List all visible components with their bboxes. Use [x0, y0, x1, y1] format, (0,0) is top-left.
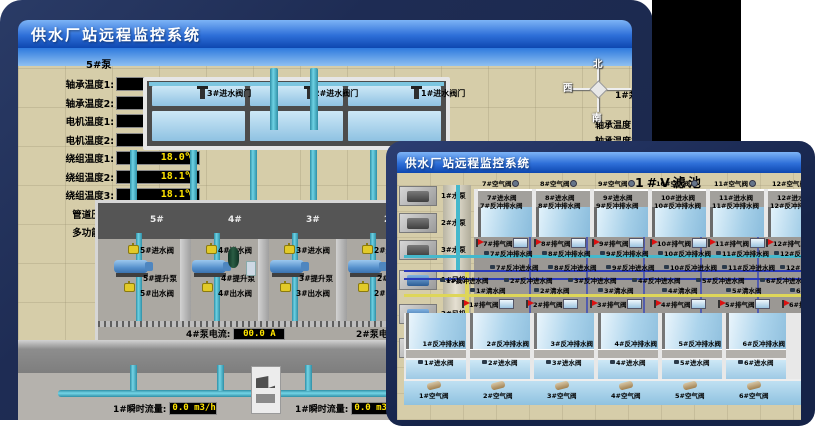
cell-header-band: 12#进水阀 12#反冲排水阀 [768, 189, 801, 207]
air-valve-label: 11#空气阀 [714, 178, 748, 188]
air-valve-label: 10#空气阀 [656, 178, 690, 188]
flag-icon [654, 300, 656, 308]
exhaust-valve[interactable]: 11#排气阀 [708, 238, 765, 248]
valve-icon [542, 251, 547, 255]
pump-label: 2#水泵 [441, 218, 466, 228]
exhaust-valve[interactable]: 9#排气阀 [592, 238, 644, 248]
pump-label: 1#水泵 [441, 191, 466, 201]
valve-icon [600, 251, 605, 255]
air-valve[interactable]: 8#空气阀 [540, 178, 577, 188]
air-valve-label: 6#空气阀 [739, 390, 768, 400]
pipe-gallery: 7#排气阀 8#排气阀 9#排气阀 10#排气阀 11#排气阀 [474, 237, 801, 313]
exhaust-valve[interactable]: 3#排气阀 [590, 299, 642, 309]
intake-pool [143, 77, 450, 150]
exhaust-valve[interactable]: 6#排气阀 [782, 299, 801, 309]
backwash-drain-valve[interactable]: 9#反冲排水阀 [600, 248, 648, 258]
backwash-inlet-label: 1#反冲进水阀 [446, 275, 488, 285]
backwash-drain-label: 6#反冲排水阀 [743, 338, 785, 348]
backwash-drain-label: 12#反冲排水阀 [770, 200, 801, 210]
valve-icon [696, 278, 701, 282]
tank-icon [750, 238, 765, 248]
valve-icon [628, 180, 635, 187]
inlet-gate-valve[interactable]: 3#进水阀门 [200, 88, 251, 99]
flag-icon [590, 300, 592, 308]
exhaust-valve-label: 12#排气阀 [773, 238, 801, 248]
valve-icon [490, 265, 495, 269]
valve-icon [534, 288, 539, 292]
backwash-inlet-label: 2#反冲进水阀 [510, 275, 552, 285]
backwash-drain-label: 3#反冲排水阀 [551, 338, 593, 348]
valve-icon [664, 265, 669, 269]
backwash-drain-valve[interactable]: 12#反冲排水阀 [774, 248, 801, 258]
exhaust-valve-label: 2#排气阀 [533, 299, 562, 309]
pipe-stub [217, 365, 224, 391]
panel-row-label: 电机温度2: [48, 133, 114, 147]
exhaust-valve[interactable]: 1#排气阀 [462, 299, 514, 309]
inlet-valve[interactable]: 5#进水阀 [674, 357, 709, 367]
clean-water-valve[interactable]: 5#清水阀 [726, 285, 761, 295]
backwash-inlet-label: 6#反冲进水阀 [766, 275, 801, 285]
pipe-stub [130, 150, 137, 200]
valve-icon [606, 265, 611, 269]
valve-icon[interactable] [124, 283, 135, 292]
inlet-valve[interactable]: 4#进水阀 [610, 357, 645, 367]
air-valve-label: 7#空气阀 [482, 178, 511, 188]
backwash-inlet-valve[interactable]: 2#反冲进水阀 [504, 275, 552, 285]
air-valve-label: 3#空气阀 [547, 390, 576, 400]
air-valve[interactable]: 4#空气阀 [611, 382, 640, 400]
outlet-valve-label: 4#出水阀 [218, 288, 252, 299]
gate-valve-icon [414, 88, 419, 99]
backwash-drain-label: 11#反冲排水阀 [712, 200, 759, 210]
valve-icon[interactable] [206, 245, 217, 254]
cell-water [710, 207, 764, 237]
blower-icon [399, 270, 437, 290]
gate-valve-icon [200, 88, 205, 99]
pipe-stub [190, 150, 197, 200]
clean-water-valve[interactable]: 4#清水阀 [662, 285, 697, 295]
filter-cell-bottom[interactable]: 6#反冲排水阀 6#进水阀 [726, 313, 786, 379]
air-valve[interactable]: 11#空气阀 [714, 178, 756, 188]
air-valve-label: 1#空气阀 [419, 390, 448, 400]
valve-icon [632, 278, 637, 282]
panel-row-label: 电机温度1: [48, 114, 114, 128]
inlet-valve-label: 2#进水阀 [488, 357, 517, 367]
control-panel-icon [246, 261, 256, 276]
tank-icon [513, 238, 528, 248]
cell-header-band: 8#进水阀 8#反冲排水阀 [536, 189, 590, 207]
backwash-drain-valve[interactable]: 8#反冲排水阀 [542, 248, 590, 258]
tank-icon [755, 299, 770, 309]
filter-cell-bottom[interactable]: 2#反冲排水阀 2#进水阀 [470, 313, 530, 379]
backwash-drain-label: 11#反冲排水阀 [722, 248, 769, 258]
backwash-inlet-valve[interactable]: 5#反冲进水阀 [696, 275, 744, 285]
backwash-drain-label: 10#反冲排水阀 [664, 248, 711, 258]
flag-icon [534, 239, 536, 247]
backwash-inlet-valve[interactable]: 9#反冲进水阀 [606, 262, 654, 272]
window2-titlebar[interactable]: 供水厂站远程监控系统 [397, 152, 801, 173]
lift-pump-label: 5#提升泵 [143, 273, 177, 284]
tank-icon [563, 299, 578, 309]
valve-icon [512, 180, 519, 187]
valve-icon [716, 251, 721, 255]
pool-cell [152, 111, 245, 141]
valve-icon [674, 360, 679, 364]
panel-row-label: 绕组温度1: [48, 151, 114, 165]
filter-cell-bottom[interactable]: 4#反冲排水阀 4#进水阀 [598, 313, 658, 379]
cell-water: 5#反冲排水阀 [662, 313, 722, 349]
air-valve[interactable]: 7#空气阀 [482, 178, 519, 188]
inlet-valve-label: 5#进水阀 [140, 245, 174, 256]
pump-bay: 3# 3#进水阀 3#提升泵 3#出水阀 [266, 203, 340, 327]
backwash-inlet-valve[interactable]: 8#反冲进水阀 [548, 262, 596, 272]
pump-bay: 5# 5#进水阀 5#提升泵 5#出水阀 [110, 203, 184, 327]
window1-titlebar[interactable]: 供水厂站远程监控系统 [18, 20, 632, 48]
pipe-stub [250, 150, 257, 200]
inlet-valve-label: 5#进水阀 [680, 357, 709, 367]
pool-channel [149, 82, 444, 86]
valve-icon [658, 251, 663, 255]
tank-icon [692, 238, 707, 248]
air-valve[interactable]: 1#空气阀 [419, 382, 448, 400]
flow-display: 1#瞬时流量: 0.0 m3/h [295, 402, 399, 415]
backwash-drain-label: 9#反冲排水阀 [596, 200, 638, 210]
valve-icon [691, 180, 698, 187]
backwash-inlet-valve[interactable]: 3#反冲进水阀 [568, 275, 616, 285]
air-valve[interactable]: 6#空气阀 [739, 382, 768, 400]
backwash-inlet-label: 9#反冲进水阀 [612, 262, 654, 272]
backwash-inlet-valve[interactable]: 12#反冲进水阀 [780, 262, 801, 272]
gate-valve-label: 1#进水阀门 [421, 88, 465, 99]
compass-star-icon [589, 80, 607, 98]
backwash-drain-label: 9#反冲排水阀 [606, 248, 648, 258]
backwash-inlet-label: 4#反冲进水阀 [638, 275, 680, 285]
clean-water-valve-label: 5#清水阀 [732, 285, 761, 295]
valve-icon[interactable] [128, 245, 139, 254]
cell-water: 6#反冲排水阀 [726, 313, 786, 349]
exhaust-valve-label: 9#排气阀 [599, 238, 628, 248]
pump-icon[interactable] [270, 260, 304, 273]
cell-water: 4#反冲排水阀 [598, 313, 658, 349]
backwash-drain-label: 12#反冲排水阀 [780, 248, 801, 258]
clean-water-valve[interactable]: 3#清水阀 [598, 285, 633, 295]
backwash-inlet-label: 7#反冲进水阀 [496, 262, 538, 272]
exhaust-valve[interactable]: 8#排气阀 [534, 238, 586, 248]
led-display: 18.1℃ [116, 170, 200, 184]
pipe-stub [130, 365, 137, 391]
air-valve[interactable]: 3#空气阀 [547, 382, 576, 400]
flag-icon [782, 300, 784, 308]
valve-icon [662, 288, 667, 292]
flag-icon [766, 239, 768, 247]
window-v-filter: 供水厂站远程监控系统 1#V滤池 1#水泵 2#水泵 3#水泵 1#风机 2#风… [386, 141, 815, 426]
valve-icon [726, 288, 731, 292]
window1-title: 供水厂站远程监控系统 [31, 24, 201, 45]
backwash-inlet-valve[interactable]: 10#反冲进水阀 [664, 262, 717, 272]
backwash-drain-valve[interactable]: 7#反冲排水阀 [484, 248, 532, 258]
tank-icon [571, 238, 586, 248]
pipe-stub [305, 365, 312, 391]
inlet-valve-label: 3#进水阀 [552, 357, 581, 367]
inlet-valve-label: 4#进水阀 [616, 357, 645, 367]
panel-row-label: 轴承温度1: [48, 77, 114, 91]
valve-icon [482, 360, 487, 364]
valve-icon [780, 265, 785, 269]
cell-water [768, 207, 801, 237]
tank-icon [228, 247, 239, 268]
flag-icon [718, 300, 720, 308]
backwash-inlet-label: 11#反冲进水阀 [728, 262, 775, 272]
tank-icon [629, 238, 644, 248]
pipe-cyan [456, 185, 460, 271]
exhaust-valve-label: 10#排气阀 [657, 238, 691, 248]
filter-cell-top[interactable]: 7#进水阀 7#反冲排水阀 [478, 189, 532, 237]
filter-cell-bottom[interactable]: 5#反冲排水阀 5#进水阀 [662, 313, 722, 379]
tank-icon [627, 299, 642, 309]
cell-water: 2#反冲排水阀 [470, 313, 530, 349]
pump-icon[interactable] [348, 260, 382, 273]
valve-icon [598, 288, 603, 292]
exhaust-valve-label: 3#排气阀 [597, 299, 626, 309]
backwash-drain-label: 5#反冲排水阀 [679, 338, 721, 348]
compass-north: 北 [593, 56, 603, 70]
pump-icon[interactable] [192, 260, 226, 273]
backwash-drain-label: 7#反冲排水阀 [490, 248, 532, 258]
valve-icon [548, 265, 553, 269]
backwash-inlet-label: 12#反冲进水阀 [786, 262, 801, 272]
exhaust-valve[interactable]: 5#排气阀 [718, 299, 770, 309]
valve-icon [440, 278, 445, 282]
air-valve[interactable]: 2#空气阀 [483, 382, 512, 400]
valve-icon [470, 288, 475, 292]
compass-south: 南 [592, 110, 602, 124]
backwash-drain-label: 2#反冲排水阀 [487, 338, 529, 348]
tank-icon [499, 299, 514, 309]
filter-cell-bottom[interactable]: 1#反冲排水阀 1#进水阀 [406, 313, 466, 379]
clean-water-valve-label: 6#清水阀 [796, 285, 801, 295]
valve-icon[interactable] [358, 283, 369, 292]
backwash-inlet-label: 5#反冲进水阀 [702, 275, 744, 285]
panel-row: 绕组温度2: 18.1℃ [48, 170, 200, 184]
cell-header-band: 11#进水阀 11#反冲排水阀 [710, 189, 764, 207]
inlet-valve[interactable]: 6#进水阀 [738, 357, 773, 367]
cell-water: 1#反冲排水阀 [406, 313, 466, 349]
air-valve-label: 4#空气阀 [611, 390, 640, 400]
cell-water: 3#反冲排水阀 [534, 313, 594, 349]
main-pipe [58, 390, 410, 397]
cell-water [594, 207, 648, 237]
backwash-drain-valve[interactable]: 10#反冲排水阀 [658, 248, 711, 258]
flag-icon [462, 300, 464, 308]
flag-icon [526, 300, 528, 308]
filter-cell-bottom[interactable]: 3#反冲排水阀 3#进水阀 [534, 313, 594, 379]
led-display: 18.0℃ [116, 151, 200, 165]
valve-icon[interactable] [280, 283, 291, 292]
inlet-valve[interactable]: 3#进水阀 [546, 357, 581, 367]
valve-icon [570, 180, 577, 187]
window2-title: 供水厂站远程监控系统 [405, 155, 530, 171]
bay-number: 5# [150, 215, 164, 225]
exhaust-valve-label: 11#排气阀 [715, 238, 749, 248]
backwash-inlet-valve[interactable]: 6#反冲进水阀 [760, 275, 801, 285]
air-valve-label: 2#空气阀 [483, 390, 512, 400]
gate-valve-label: 3#进水阀门 [207, 88, 251, 99]
riser-pipe [270, 68, 278, 130]
backwash-inlet-valve[interactable]: 1#反冲进水阀 [440, 275, 488, 285]
backwash-drain-label: 8#反冲排水阀 [548, 248, 590, 258]
pump-current-display: 4#泵电流: 00.0 A [186, 327, 285, 340]
air-valve-label: 12#空气阀 [772, 178, 801, 188]
backwash-drain-label: 1#反冲排水阀 [423, 338, 465, 348]
flag-icon [650, 239, 652, 247]
valve-icon [418, 360, 423, 364]
pump-icon [399, 186, 437, 206]
filter-cell-top[interactable]: 11#进水阀 11#反冲排水阀 [710, 189, 764, 237]
valve-icon [774, 251, 779, 255]
air-valve[interactable]: 5#空气阀 [675, 382, 704, 400]
pump-icon [399, 213, 437, 233]
filter-cell-top[interactable]: 12#进水阀 12#反冲排水阀 [768, 189, 801, 237]
valve-icon [484, 251, 489, 255]
valve-icon [610, 360, 615, 364]
pipe-stub [310, 150, 317, 200]
cell-header-band: 10#进水阀 10#反冲排水阀 [652, 189, 706, 207]
backwash-inlet-valve[interactable]: 7#反冲进水阀 [490, 262, 538, 272]
background-patch [652, 0, 741, 145]
air-valve-label: 5#空气阀 [675, 390, 704, 400]
cell-water [536, 207, 590, 237]
air-valve-label: 8#空气阀 [540, 178, 569, 188]
backwash-inlet-valve[interactable]: 11#反冲进水阀 [722, 262, 775, 272]
valve-icon [568, 278, 573, 282]
filter-cell-top[interactable]: 8#进水阀 8#反冲排水阀 [536, 189, 590, 237]
clean-water-valve[interactable]: 6#清水阀 [790, 285, 801, 295]
pump-icon[interactable] [114, 260, 148, 273]
current-label: 4#泵电流: [186, 327, 230, 340]
outlet-valve-label: 3#出水阀 [296, 288, 330, 299]
valve-icon [722, 265, 727, 269]
valve-icon [738, 360, 743, 364]
outlet-valve-label: 5#出水阀 [140, 288, 174, 299]
backwash-inlet-label: 8#反冲进水阀 [554, 262, 596, 272]
valve-icon[interactable] [202, 283, 213, 292]
air-valve[interactable]: 12#空气阀 [772, 178, 801, 188]
inlet-valve-label: 6#进水阀 [744, 357, 773, 367]
pump5-panel-header: 5#泵 [86, 56, 111, 71]
panel-row-label: 轴承温度2: [48, 96, 114, 110]
filter-scene: 1#V滤池 1#水泵 2#水泵 3#水泵 1#风机 2#风机 3#风机 [397, 173, 801, 420]
cell-water [478, 207, 532, 237]
valve-icon [790, 288, 795, 292]
exhaust-valve[interactable]: 4#排气阀 [654, 299, 706, 309]
gate-valve-label: 2#进水阀门 [314, 88, 358, 99]
clean-water-valve-label: 3#清水阀 [604, 285, 633, 295]
pipe-stub [370, 150, 377, 200]
pool-cell [348, 111, 441, 141]
valve-icon [546, 360, 551, 364]
exhaust-valve-label: 4#排气阀 [661, 299, 690, 309]
flow-label: 1#瞬时流量: [295, 402, 348, 415]
inlet-valve-label: 3#进水阀 [296, 245, 330, 256]
flag-icon [476, 239, 478, 247]
cell-water [652, 207, 706, 237]
compass-west: 西 [563, 80, 573, 94]
pool-cell [250, 111, 343, 141]
exhaust-valve[interactable]: 2#排气阀 [526, 299, 578, 309]
valve-icon [504, 278, 509, 282]
clean-water-valve[interactable]: 2#清水阀 [534, 285, 569, 295]
pump-label: 3#水泵 [441, 245, 466, 255]
backwash-drain-label: 8#反冲排水阀 [538, 200, 580, 210]
flag-icon [708, 239, 710, 247]
backwash-inlet-label: 10#反冲进水阀 [670, 262, 717, 272]
valve-icon [760, 278, 765, 282]
exhaust-valve-label: 5#排气阀 [725, 299, 754, 309]
valve-icon[interactable] [362, 245, 373, 254]
exhaust-valve[interactable]: 10#排气阀 [650, 238, 707, 248]
tank-icon [691, 299, 706, 309]
camera-icon[interactable] [251, 366, 281, 414]
exhaust-valve-label: 7#排气阀 [483, 238, 512, 248]
inlet-valve-label: 1#进水阀 [424, 357, 453, 367]
inlet-valve[interactable]: 2#进水阀 [482, 357, 517, 367]
compass: 北 西 南 [563, 58, 632, 122]
lift-pump-label: 3#提升泵 [299, 273, 333, 284]
backwash-inlet-valve[interactable]: 4#反冲进水阀 [632, 275, 680, 285]
bay-number: 3# [306, 215, 320, 225]
exhaust-valve[interactable]: 7#排气阀 [476, 238, 528, 248]
flag-icon [592, 239, 594, 247]
air-valve-label: 9#空气阀 [598, 178, 627, 188]
clean-water-valve[interactable]: 1#清水阀 [470, 285, 505, 295]
panel-row-label: 绕组温度2: [48, 170, 114, 184]
backwash-drain-valve[interactable]: 11#反冲排水阀 [716, 248, 769, 258]
backwash-inlet-label: 3#反冲进水阀 [574, 275, 616, 285]
led-display: 0.0 m3/h [169, 402, 217, 415]
clean-water-valve-label: 1#清水阀 [476, 285, 505, 295]
exhaust-valve-label: 6#排气阀 [789, 299, 801, 309]
backwash-drain-label: 7#反冲排水阀 [480, 200, 522, 210]
exhaust-valve-label: 1#排气阀 [469, 299, 498, 309]
panel-row: 绕组温度1: 18.0℃ [48, 151, 200, 165]
exhaust-valve-label: 8#排气阀 [541, 238, 570, 248]
valve-icon[interactable] [284, 245, 295, 254]
cell-header-band: 9#进水阀 9#反冲排水阀 [594, 189, 648, 207]
inlet-valve[interactable]: 1#进水阀 [418, 357, 453, 367]
air-valve[interactable]: 9#空气阀 [598, 178, 635, 188]
riser-pipe [310, 68, 318, 130]
flow-display: 1#瞬时流量: 0.0 m3/h [113, 402, 217, 415]
flow-label: 1#瞬时流量: [113, 402, 166, 415]
filter-cell-top[interactable]: 9#进水阀 9#反冲排水阀 [594, 189, 648, 237]
exhaust-valve[interactable]: 12#排气阀 [766, 238, 801, 248]
clean-water-valve-label: 2#清水阀 [540, 285, 569, 295]
filter-cell-top[interactable]: 10#进水阀 10#反冲排水阀 [652, 189, 706, 237]
backwash-drain-label: 4#反冲排水阀 [615, 338, 657, 348]
cell-header-band: 7#进水阀 7#反冲排水阀 [478, 189, 532, 207]
bay-number: 4# [228, 215, 242, 225]
valve-icon [749, 180, 756, 187]
clean-water-valve-label: 4#清水阀 [668, 285, 697, 295]
air-valve[interactable]: 10#空气阀 [656, 178, 698, 188]
inlet-gate-valve[interactable]: 1#进水阀门 [414, 88, 465, 99]
backwash-drain-label: 10#反冲排水阀 [654, 200, 701, 210]
led-display: 00.0 A [233, 328, 285, 340]
